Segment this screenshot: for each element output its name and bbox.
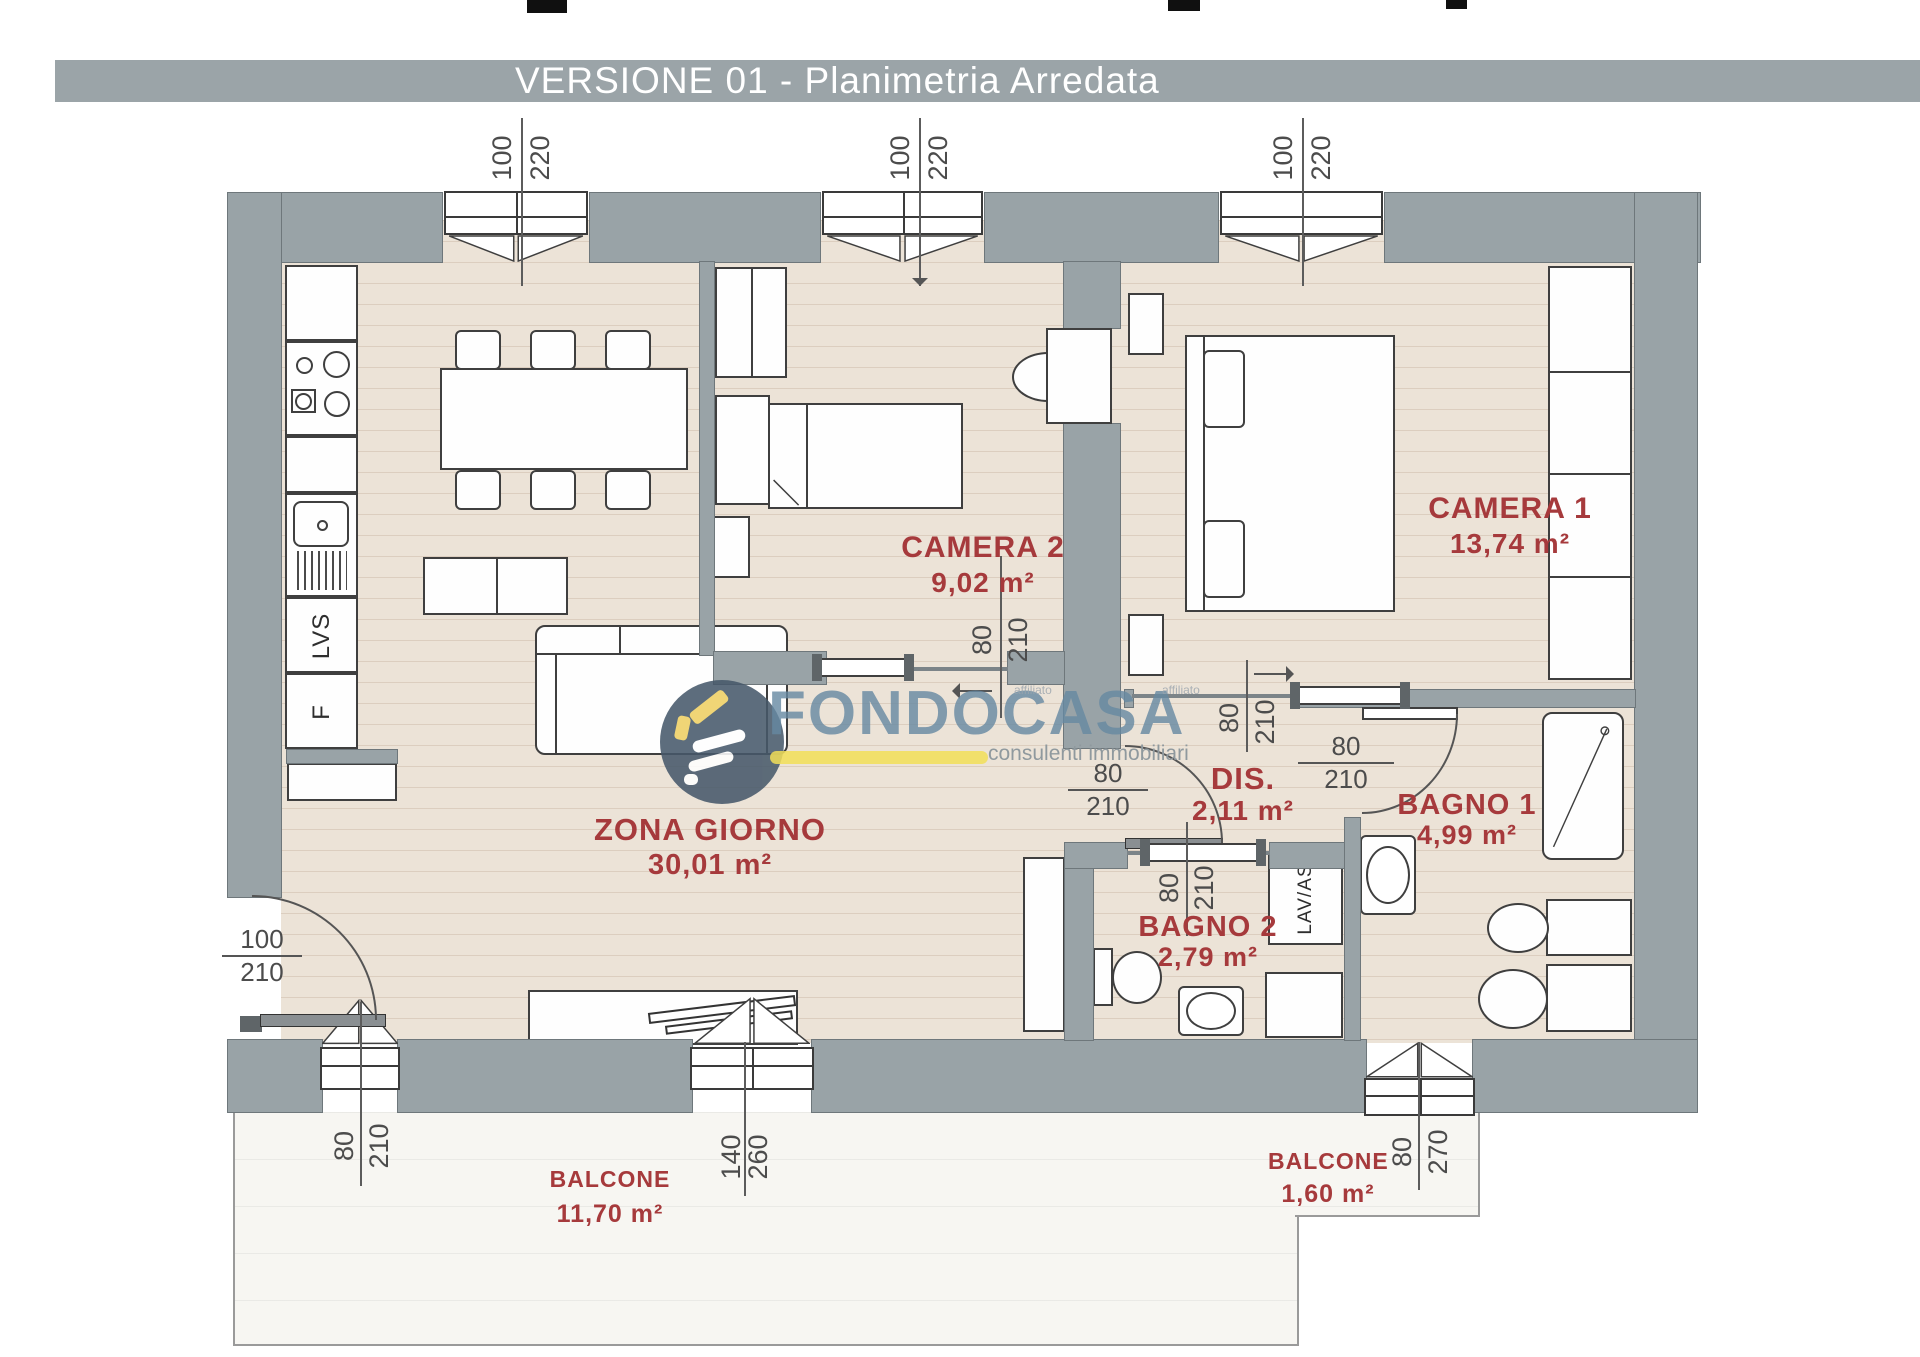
dimension-line [1302, 118, 1304, 286]
room-area-balcone2: 1,60 m² [1268, 1180, 1388, 1209]
camera1-nightstand [1128, 614, 1164, 676]
bidet [1487, 903, 1549, 953]
dim-entrance-door: 100 210 [222, 924, 302, 988]
brand-logo-yellow-mark [688, 689, 730, 726]
brand-affiliate-note: affiliato [1162, 683, 1222, 696]
shower [1542, 712, 1624, 860]
fridge-label: F [308, 667, 336, 757]
scan-artifact [1168, 0, 1200, 11]
slide-arrow-camera1 [1254, 673, 1288, 675]
wall-top-segment [985, 193, 1218, 262]
bagno2-door-cap [1140, 839, 1150, 866]
dining-chair [455, 470, 501, 510]
hall-column-cabinet [1023, 857, 1065, 1032]
kitchen-peninsula-top [287, 750, 397, 763]
dining-table [440, 368, 688, 470]
camera2-door-cap [904, 654, 914, 681]
wall-bagno2-left [1065, 843, 1093, 1040]
dim-window2-width: 100 [886, 113, 914, 203]
kitchen-counter [285, 436, 358, 493]
wall-right [1635, 193, 1697, 1112]
dining-chair [530, 470, 576, 510]
camera2-door-cap [812, 654, 822, 681]
kitchen-peninsula [287, 763, 397, 801]
camera2-desk [1046, 328, 1112, 424]
room-label-camera1: CAMERA 1 [1390, 492, 1630, 526]
room-label-balcone1: BALCONE [540, 1166, 680, 1193]
dimension-arrow [912, 278, 928, 294]
room-label-bagno1: BAGNO 1 [1392, 789, 1542, 822]
camera1-door-cap [1290, 682, 1300, 709]
stove-burner [295, 393, 312, 410]
camera1-sliding-door [1296, 686, 1408, 705]
wall-bagno2-bagno1 [1345, 818, 1360, 1040]
wall-camera2-camera1-upper [1064, 262, 1120, 328]
room-label-bagno2: BAGNO 2 [1132, 911, 1284, 944]
brand-tagline: consulenti immobiliari [988, 742, 1168, 768]
camera2-dresser [715, 395, 770, 505]
dim-double-door-height: 260 [744, 1112, 772, 1202]
bagno2-door-cap [1256, 839, 1266, 866]
dim-bagno1-door-width: 80 [1298, 731, 1394, 764]
dim-camera1-door-height: 210 [1251, 677, 1279, 767]
dim-window3-width: 100 [1269, 113, 1297, 203]
brand-underline-bar [770, 751, 988, 764]
brand-logo-circle [660, 680, 784, 804]
dim-window3-height: 220 [1307, 113, 1335, 203]
room-area-zona-giorno: 30,01 m² [575, 849, 845, 882]
stove-burner [323, 351, 350, 378]
wall-top-segment [590, 193, 820, 262]
camera2-sliding-door [818, 658, 912, 677]
brand-logo-white-stroke [691, 728, 746, 754]
camera1-wardrobe [1548, 266, 1632, 680]
dimension-line [919, 118, 921, 286]
camera1-pillow [1203, 520, 1245, 598]
wall-bagno2-top-right [1270, 843, 1345, 868]
camera1-door-cap [1400, 682, 1410, 709]
dim-entrance-door-height: 210 [222, 957, 302, 988]
scan-artifact [527, 0, 567, 13]
dim-window2-height: 220 [924, 113, 952, 203]
slide-arrow-camera1-head [1286, 666, 1302, 682]
room-area-camera2: 9,02 m² [870, 567, 1096, 599]
dim-entrance-door-width: 100 [222, 924, 302, 957]
wall-bottom-segment [398, 1040, 692, 1112]
bagno1-sink-basin [1366, 846, 1410, 904]
dimension-line [1418, 1042, 1420, 1190]
brand-logo-yellow-mark [674, 715, 692, 741]
camera2-single-bed [768, 403, 963, 509]
dining-chair [605, 330, 651, 370]
camera2-wardrobe [715, 267, 787, 378]
room-area-dis: 2,11 m² [1183, 795, 1303, 827]
bagno2-cabinet [1265, 972, 1343, 1038]
dining-chair [605, 470, 651, 510]
dim-dis-door-height: 210 [1068, 791, 1148, 822]
bagno2-sink-basin [1186, 992, 1236, 1030]
page-title: VERSIONE 01 - Planimetria Arredata [515, 62, 1160, 100]
dim-camera2-door-width: 80 [968, 595, 996, 685]
dim-bagno1-door: 80 210 [1298, 731, 1394, 795]
balcony-double-door [690, 1047, 814, 1090]
bagno1-wc [1478, 969, 1548, 1029]
scanned-floor-plan-page: { "title": "VERSIONE 01 - Planimetria Ar… [0, 0, 1920, 1357]
room-area-balcone1: 11,70 m² [540, 1200, 680, 1229]
dim-double-door-width: 140 [717, 1112, 745, 1202]
stove-burner [324, 391, 350, 417]
bagno1-wc-back [1546, 964, 1632, 1032]
dim-balcony-door-width: 80 [330, 1101, 358, 1191]
room-area-camera1: 13,74 m² [1390, 528, 1630, 560]
camera1-pillow [1203, 350, 1245, 428]
wall-bottom-segment [228, 1040, 322, 1112]
dim-camera2-door-height: 210 [1004, 595, 1032, 685]
balcony-double-door-fans [694, 997, 810, 1045]
room-label-camera2: CAMERA 2 [870, 531, 1096, 565]
sink-faucet [317, 520, 328, 531]
dim-bagno1-window-height: 270 [1424, 1107, 1452, 1197]
dim-balcony-door-height: 210 [365, 1101, 393, 1191]
wall-bottom-segment [812, 1040, 1366, 1112]
wall-bottom-segment [1473, 1040, 1697, 1112]
brand-wordmark: FONDOCASA [768, 678, 1188, 750]
dimension-line [1246, 660, 1248, 752]
room-label-dis: DIS. [1183, 761, 1303, 797]
dim-window1-width: 100 [488, 113, 516, 203]
wall-bagno2-door-pocket [1065, 843, 1127, 868]
room-label-balcone2: BALCONE [1268, 1148, 1388, 1175]
brand-logo-white-stroke [684, 774, 698, 785]
room-area-bagno1: 4,99 m² [1392, 820, 1542, 851]
window-camera-living [444, 191, 588, 235]
stove-burner [296, 357, 313, 374]
window-shutter-fans [448, 235, 584, 262]
dining-chair [530, 330, 576, 370]
sink-drainer [297, 551, 347, 590]
dim-bagno1-door-height: 210 [1298, 764, 1394, 795]
camera1-nightstand [1128, 293, 1164, 355]
dim-window1-height: 220 [526, 113, 554, 203]
wall-left [228, 193, 281, 897]
bidet-back [1546, 899, 1632, 956]
sideboard [423, 557, 568, 615]
dim-bagno1-window-width: 80 [1388, 1107, 1416, 1197]
dimension-line [360, 1002, 362, 1186]
scan-artifact [1446, 0, 1467, 9]
wall-living-camera2 [700, 262, 714, 655]
dimension-line [521, 118, 523, 286]
dining-chair [455, 330, 501, 370]
window-shutter-fans [826, 235, 979, 262]
room-area-bagno2: 2,79 m² [1132, 942, 1284, 973]
brand-logo-white-stroke [687, 750, 734, 773]
kitchen-counter [285, 265, 358, 341]
brand-affiliate-note: affiliato [1014, 683, 1074, 696]
room-label-zona-giorno: ZONA GIORNO [575, 812, 845, 848]
bagno2-wc-back [1093, 948, 1113, 1006]
